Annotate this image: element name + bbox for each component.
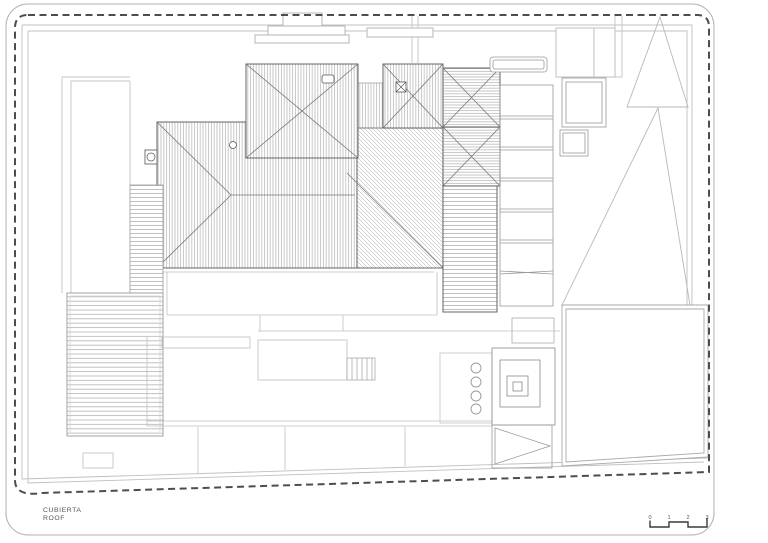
- entry-canopy-step: [268, 26, 345, 35]
- roof-block-top-left: [246, 64, 358, 158]
- nested-skylight: [492, 348, 555, 425]
- roof-walkway-strip: [443, 186, 497, 312]
- drawing-title-secondary: ROOF: [43, 515, 65, 522]
- scale-tick-label: 1: [667, 515, 670, 521]
- pergola-ladder: [500, 85, 553, 306]
- drawing-title-primary: CUBIERTA: [43, 507, 82, 514]
- roof-vent-icon: [322, 75, 334, 83]
- hatch-triangle: [492, 425, 552, 468]
- title-label: CUBIERTA ROOF: [43, 507, 82, 522]
- tree-icon: [627, 17, 688, 107]
- main-roof-hatched: [145, 64, 500, 312]
- skylights: [490, 57, 606, 343]
- court-details: [440, 348, 555, 468]
- scale-tick-label: 2: [686, 515, 689, 521]
- left-path-lines: [62, 77, 130, 293]
- roof-plan-canvas: CUBIERTA ROOF 0 1 2 3: [0, 0, 768, 543]
- roof-block-right-upper: [443, 68, 500, 127]
- roof-block-top-right: [383, 64, 443, 128]
- scale-bar: 0 1 2 3: [648, 515, 708, 527]
- vent-circles: [471, 363, 481, 414]
- roof-block-center: [347, 128, 443, 268]
- skylight-icon: [562, 78, 606, 127]
- roof-block-right-lower: [443, 127, 500, 186]
- scale-tick-label: 0: [648, 515, 651, 521]
- vent-circle-icon: [230, 142, 237, 149]
- drawing-sheet: CUBIERTA ROOF 0 1 2 3: [0, 0, 768, 543]
- terrace-large-rect: [562, 305, 708, 466]
- skylight-icon: [560, 130, 588, 156]
- entry-canopy-step: [255, 35, 349, 43]
- stairs: [347, 358, 375, 380]
- left-deck: [67, 185, 163, 436]
